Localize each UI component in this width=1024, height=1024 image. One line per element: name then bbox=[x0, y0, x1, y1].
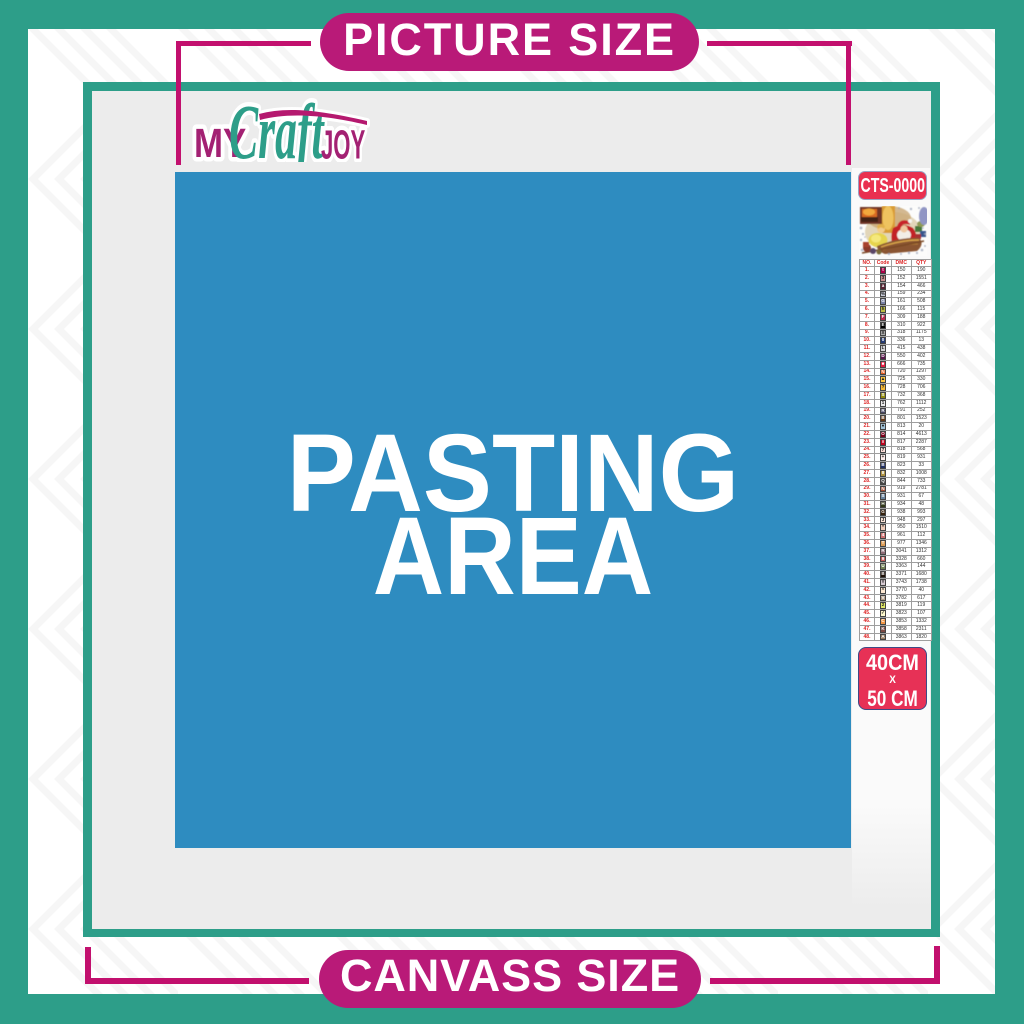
svg-text:JOY: JOY bbox=[321, 121, 365, 162]
svg-text:Craft: Craft bbox=[229, 95, 325, 162]
